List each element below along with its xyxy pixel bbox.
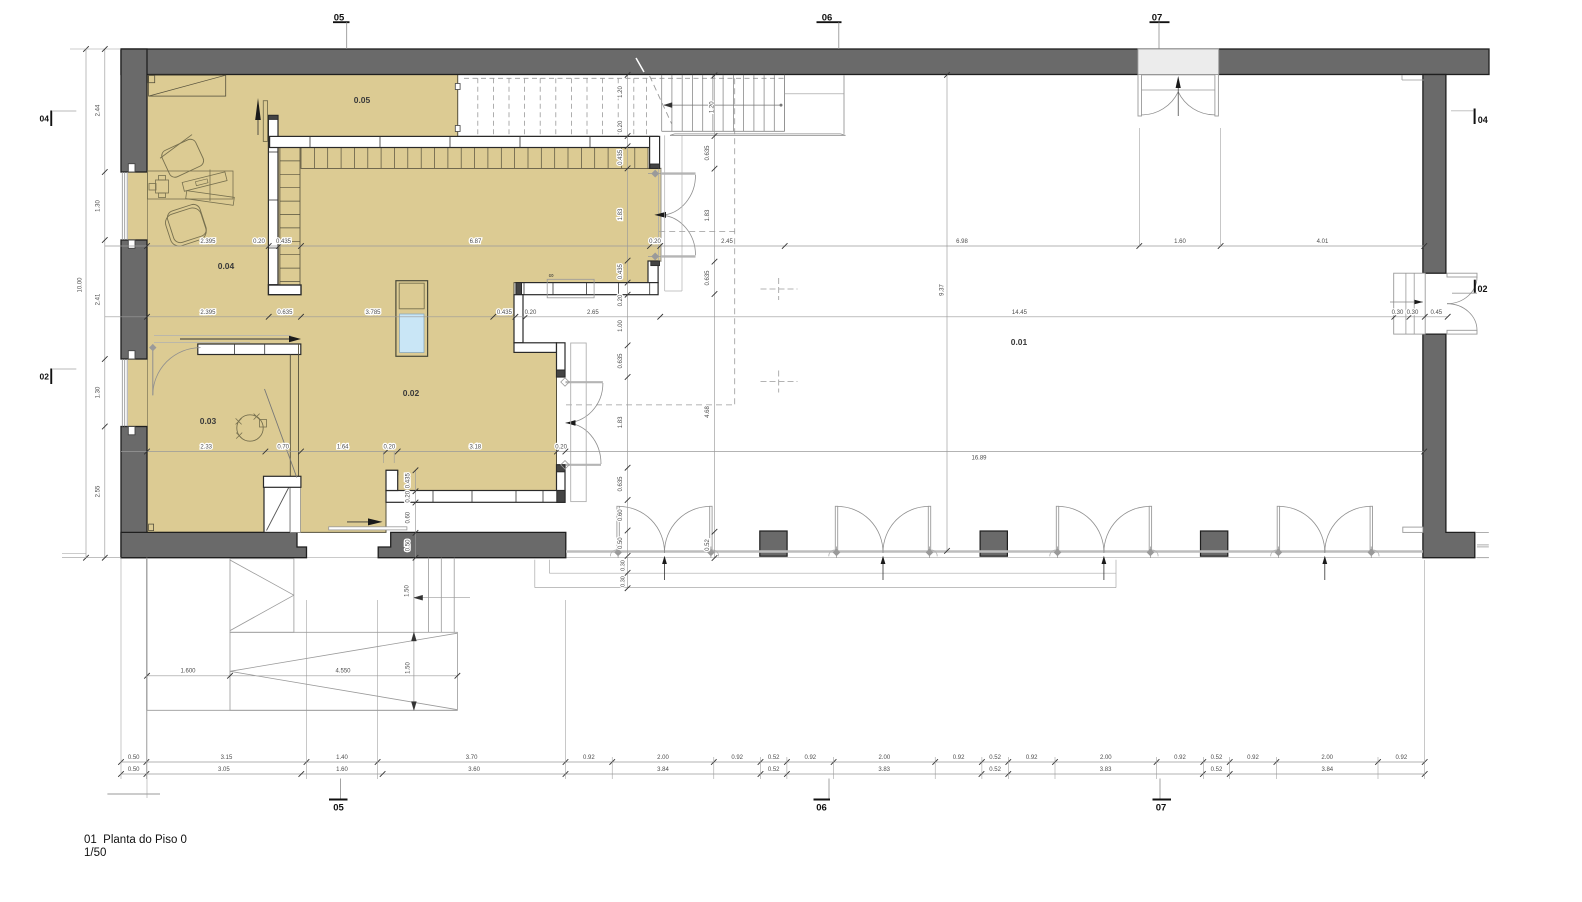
svg-text:0.435: 0.435 [618, 263, 624, 279]
svg-text:0.60: 0.60 [406, 511, 412, 523]
svg-text:1.00: 1.00 [618, 320, 624, 332]
svg-text:0.635: 0.635 [705, 145, 711, 161]
svg-text:4.01: 4.01 [1317, 239, 1329, 245]
svg-text:0.02: 0.02 [403, 388, 420, 398]
svg-text:0.30: 0.30 [620, 576, 626, 587]
svg-text:0.45: 0.45 [1430, 310, 1442, 316]
svg-text:1.30: 1.30 [95, 386, 101, 398]
svg-text:0.435: 0.435 [276, 239, 292, 245]
svg-text:0.01: 0.01 [1011, 337, 1028, 347]
svg-text:0.52: 0.52 [1211, 767, 1223, 773]
svg-text:3.60: 3.60 [468, 767, 480, 773]
svg-text:2.44: 2.44 [95, 104, 101, 116]
svg-text:6.98: 6.98 [956, 239, 968, 245]
svg-text:05: 05 [333, 803, 344, 814]
svg-text:4.68: 4.68 [705, 406, 711, 418]
svg-text:0.92: 0.92 [1174, 755, 1186, 761]
svg-text:3.785: 3.785 [365, 310, 381, 316]
svg-text:0.52: 0.52 [705, 539, 711, 551]
svg-text:0.50: 0.50 [128, 755, 140, 761]
svg-text:1.600: 1.600 [180, 668, 196, 674]
svg-text:1.83: 1.83 [618, 416, 624, 428]
svg-text:0.20: 0.20 [618, 294, 624, 306]
svg-text:0.92: 0.92 [1247, 755, 1259, 761]
svg-text:0.50: 0.50 [618, 537, 624, 549]
svg-text:3.84: 3.84 [1321, 767, 1333, 773]
svg-text:0.52: 0.52 [768, 767, 780, 773]
svg-text:0.635: 0.635 [705, 270, 711, 286]
svg-text:0.20: 0.20 [525, 310, 537, 316]
svg-text:2.00: 2.00 [1100, 755, 1112, 761]
svg-text:2.45: 2.45 [721, 239, 733, 245]
svg-text:6.87: 6.87 [470, 239, 482, 245]
svg-text:0.20: 0.20 [406, 490, 412, 502]
svg-text:1/50: 1/50 [84, 847, 106, 859]
svg-text:3.83: 3.83 [878, 767, 890, 773]
svg-text:0.635: 0.635 [277, 310, 293, 316]
svg-text:1.20: 1.20 [618, 86, 624, 98]
svg-text:2.65: 2.65 [587, 310, 599, 316]
svg-text:2.00: 2.00 [1321, 755, 1333, 761]
svg-text:07: 07 [1156, 803, 1167, 814]
svg-text:0.92: 0.92 [583, 755, 595, 761]
svg-text:0.52: 0.52 [989, 767, 1001, 773]
svg-text:0.20: 0.20 [649, 239, 661, 245]
svg-text:0.30: 0.30 [1407, 310, 1419, 316]
svg-text:0.635: 0.635 [618, 353, 624, 369]
svg-text:14.45: 14.45 [1012, 310, 1028, 316]
svg-text:0.60: 0.60 [618, 509, 624, 521]
svg-text:1.50: 1.50 [406, 662, 412, 674]
svg-text:3.18: 3.18 [469, 445, 481, 451]
svg-text:0.50: 0.50 [406, 539, 412, 551]
svg-text:0.635: 0.635 [618, 476, 624, 492]
svg-text:16.89: 16.89 [971, 456, 987, 462]
svg-text:0.04: 0.04 [218, 261, 235, 271]
svg-text:1.83: 1.83 [618, 208, 624, 220]
svg-text:04: 04 [40, 114, 50, 124]
svg-text:3.05: 3.05 [218, 767, 230, 773]
svg-text:2.395: 2.395 [200, 239, 216, 245]
svg-text:2.395: 2.395 [200, 310, 216, 316]
svg-text:0.92: 0.92 [804, 755, 816, 761]
svg-text:0.50: 0.50 [128, 767, 140, 773]
svg-text:0.92: 0.92 [1396, 755, 1408, 761]
svg-text:1.60: 1.60 [1174, 239, 1186, 245]
svg-text:06: 06 [816, 803, 827, 814]
svg-text:0.20: 0.20 [253, 239, 265, 245]
svg-text:01 Planta do Piso 0: 01 Planta do Piso 0 [84, 834, 187, 846]
svg-text:0.20: 0.20 [384, 445, 396, 451]
svg-text:10.00: 10.00 [78, 277, 84, 293]
svg-text:2.00: 2.00 [657, 755, 669, 761]
svg-text:0.435: 0.435 [618, 149, 624, 165]
svg-text:0.92: 0.92 [953, 755, 965, 761]
svg-text:0.30: 0.30 [620, 560, 626, 571]
svg-text:3.83: 3.83 [1100, 767, 1112, 773]
svg-text:3.70: 3.70 [466, 755, 478, 761]
svg-text:0.30: 0.30 [1392, 310, 1404, 316]
svg-text:9.37: 9.37 [940, 284, 946, 296]
svg-text:0.435: 0.435 [497, 310, 513, 316]
svg-text:1.64: 1.64 [337, 445, 349, 451]
svg-text:∞: ∞ [549, 273, 554, 280]
svg-text:04: 04 [1478, 115, 1488, 125]
svg-text:3.15: 3.15 [221, 755, 233, 761]
svg-text:3.84: 3.84 [657, 767, 669, 773]
svg-text:02: 02 [1478, 284, 1488, 294]
svg-text:0.52: 0.52 [768, 755, 780, 761]
svg-text:0.92: 0.92 [731, 755, 743, 761]
svg-text:4.550: 4.550 [335, 668, 351, 674]
svg-text:0.05: 0.05 [354, 95, 371, 105]
svg-text:0.435: 0.435 [406, 473, 412, 489]
svg-text:0.52: 0.52 [1211, 755, 1223, 761]
svg-text:1.83: 1.83 [705, 209, 711, 221]
svg-text:0.92: 0.92 [1026, 755, 1038, 761]
svg-text:2.33: 2.33 [200, 445, 212, 451]
svg-text:1.60: 1.60 [336, 767, 348, 773]
svg-text:0.52: 0.52 [989, 755, 1001, 761]
svg-text:2.00: 2.00 [879, 755, 891, 761]
svg-text:0.70: 0.70 [277, 445, 289, 451]
svg-text:0.03: 0.03 [200, 416, 217, 426]
svg-text:02: 02 [40, 372, 50, 382]
svg-text:2.55: 2.55 [95, 485, 101, 497]
svg-text:0.20: 0.20 [618, 120, 624, 132]
svg-text:0.20: 0.20 [555, 445, 567, 451]
svg-text:2.41: 2.41 [95, 293, 101, 305]
svg-text:1.40: 1.40 [336, 755, 348, 761]
svg-text:1.30: 1.30 [95, 200, 101, 212]
svg-text:1.50: 1.50 [405, 585, 411, 597]
